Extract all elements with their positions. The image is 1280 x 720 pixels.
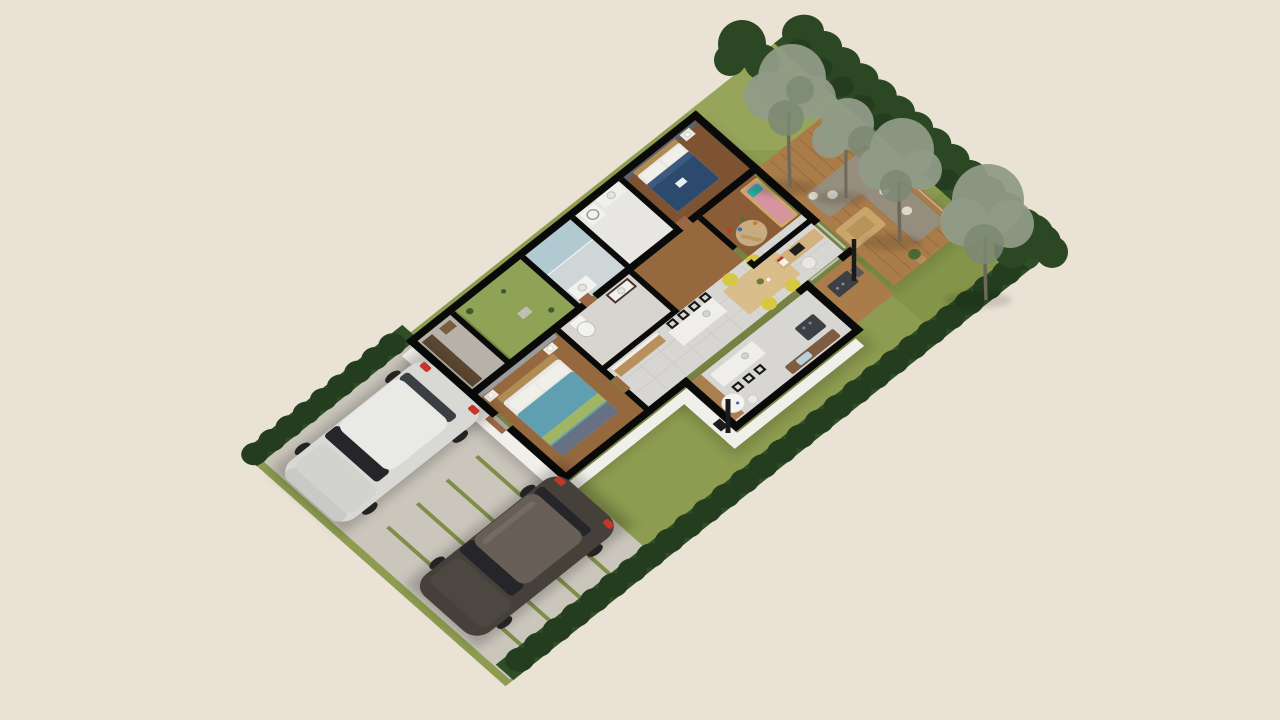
tree-foliage <box>812 122 848 158</box>
tree-shadow <box>748 180 816 196</box>
bush <box>1036 236 1068 268</box>
bush <box>714 44 746 76</box>
tree-shadow <box>944 292 1012 308</box>
tree-foliage-shade <box>964 224 1004 264</box>
tree-foliage-shade <box>768 100 804 136</box>
tree-shadow <box>862 234 922 250</box>
floor-plan-svg <box>0 0 1280 720</box>
tree-shadow <box>814 191 866 205</box>
tree-foliage-shade <box>786 76 814 104</box>
floor-plan-render <box>0 0 1280 720</box>
tree-foliage-shade <box>880 170 912 202</box>
